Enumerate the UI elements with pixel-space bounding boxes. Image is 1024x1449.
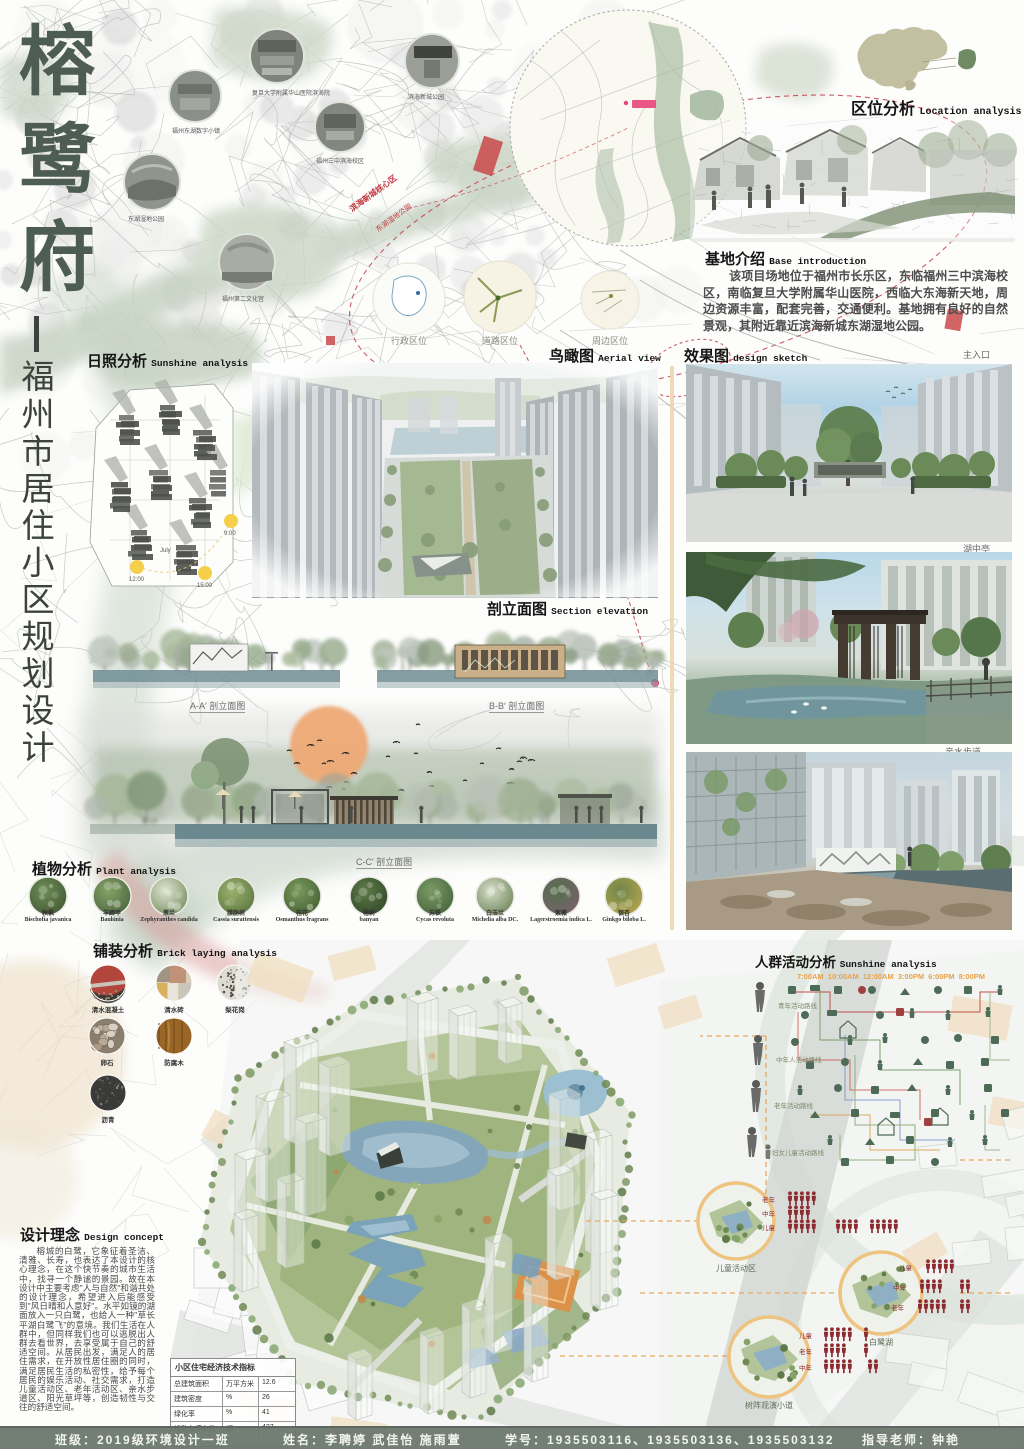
svg-text:July: July	[160, 548, 171, 554]
svg-text:妇女儿童活动路线: 妇女儿童活动路线	[772, 1148, 825, 1157]
svg-text:中年: 中年	[762, 1209, 776, 1218]
svg-text:中年人活动路线: 中年人活动路线	[776, 1055, 822, 1064]
svg-text:中年: 中年	[893, 1283, 907, 1292]
svg-text:15:00: 15:00	[197, 583, 213, 589]
svg-text:青年活动路线: 青年活动路线	[778, 1001, 818, 1010]
svg-text:12:00: 12:00	[129, 577, 145, 583]
svg-text:老年: 老年	[762, 1195, 776, 1204]
svg-text:白鹭湖: 白鹭湖	[869, 1337, 893, 1347]
svg-text:树阵观演小道: 树阵观演小道	[745, 1400, 793, 1410]
svg-text:中年: 中年	[799, 1363, 813, 1372]
svg-text:老年活动路线: 老年活动路线	[774, 1101, 814, 1110]
svg-text:9:00: 9:00	[224, 531, 236, 537]
svg-text:儿童: 儿童	[899, 1263, 913, 1272]
svg-text:老年: 老年	[799, 1347, 813, 1356]
svg-text:儿童: 儿童	[799, 1331, 813, 1340]
svg-text:儿童: 儿童	[762, 1223, 776, 1232]
svg-text:老年: 老年	[891, 1303, 905, 1312]
svg-text:儿童活动区: 儿童活动区	[716, 1263, 756, 1273]
